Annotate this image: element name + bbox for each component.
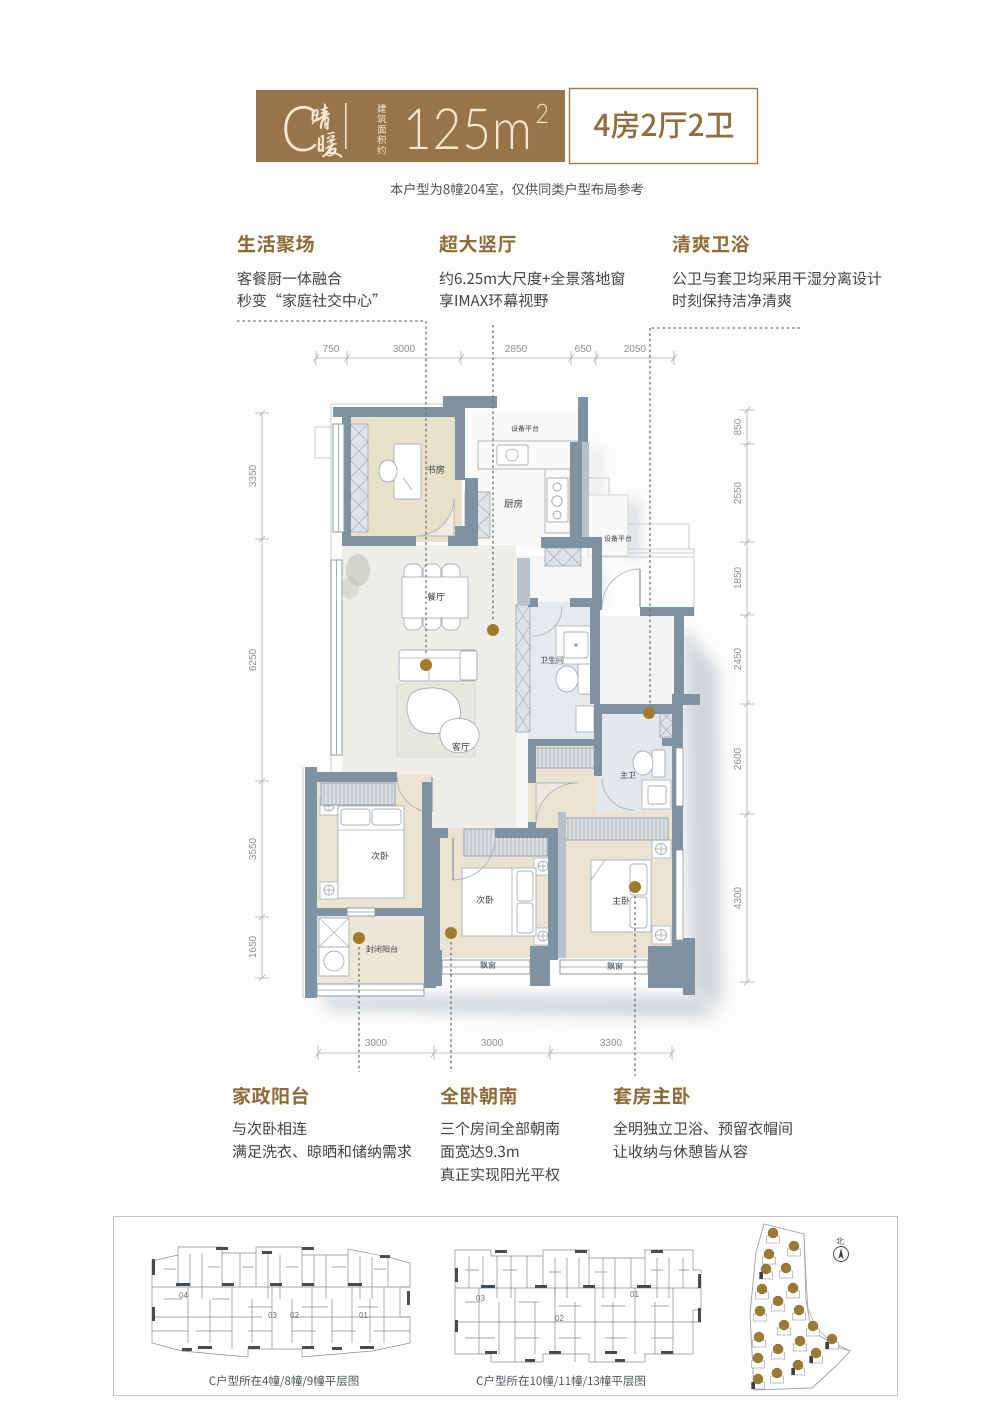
svg-text:4300: 4300 [733, 886, 744, 909]
svg-text:2850: 2850 [505, 344, 528, 355]
svg-text:2450: 2450 [733, 647, 744, 670]
svg-text:01: 01 [359, 1311, 368, 1320]
svg-text:3000: 3000 [393, 344, 416, 355]
svg-text:850: 850 [733, 418, 744, 435]
svg-text:1850: 1850 [733, 566, 744, 589]
svg-text:6250: 6250 [248, 648, 259, 671]
svg-text:3000: 3000 [481, 1038, 504, 1049]
svg-text:01: 01 [630, 1290, 639, 1299]
svg-text:650: 650 [575, 344, 592, 355]
svg-text:750: 750 [323, 344, 340, 355]
svg-text:2050: 2050 [624, 344, 647, 355]
svg-text:3550: 3550 [248, 837, 259, 860]
svg-text:3000: 3000 [365, 1038, 388, 1049]
svg-text:3300: 3300 [600, 1038, 623, 1049]
svg-text:03: 03 [476, 1294, 485, 1303]
svg-text:2600: 2600 [733, 747, 744, 770]
svg-text:2550: 2550 [733, 481, 744, 504]
svg-text:02: 02 [290, 1311, 299, 1320]
svg-text:1650: 1650 [248, 935, 259, 958]
svg-text:02: 02 [555, 1314, 564, 1323]
svg-text:3350: 3350 [248, 464, 259, 487]
svg-text:03: 03 [268, 1311, 277, 1320]
svg-text:04: 04 [179, 1291, 188, 1300]
